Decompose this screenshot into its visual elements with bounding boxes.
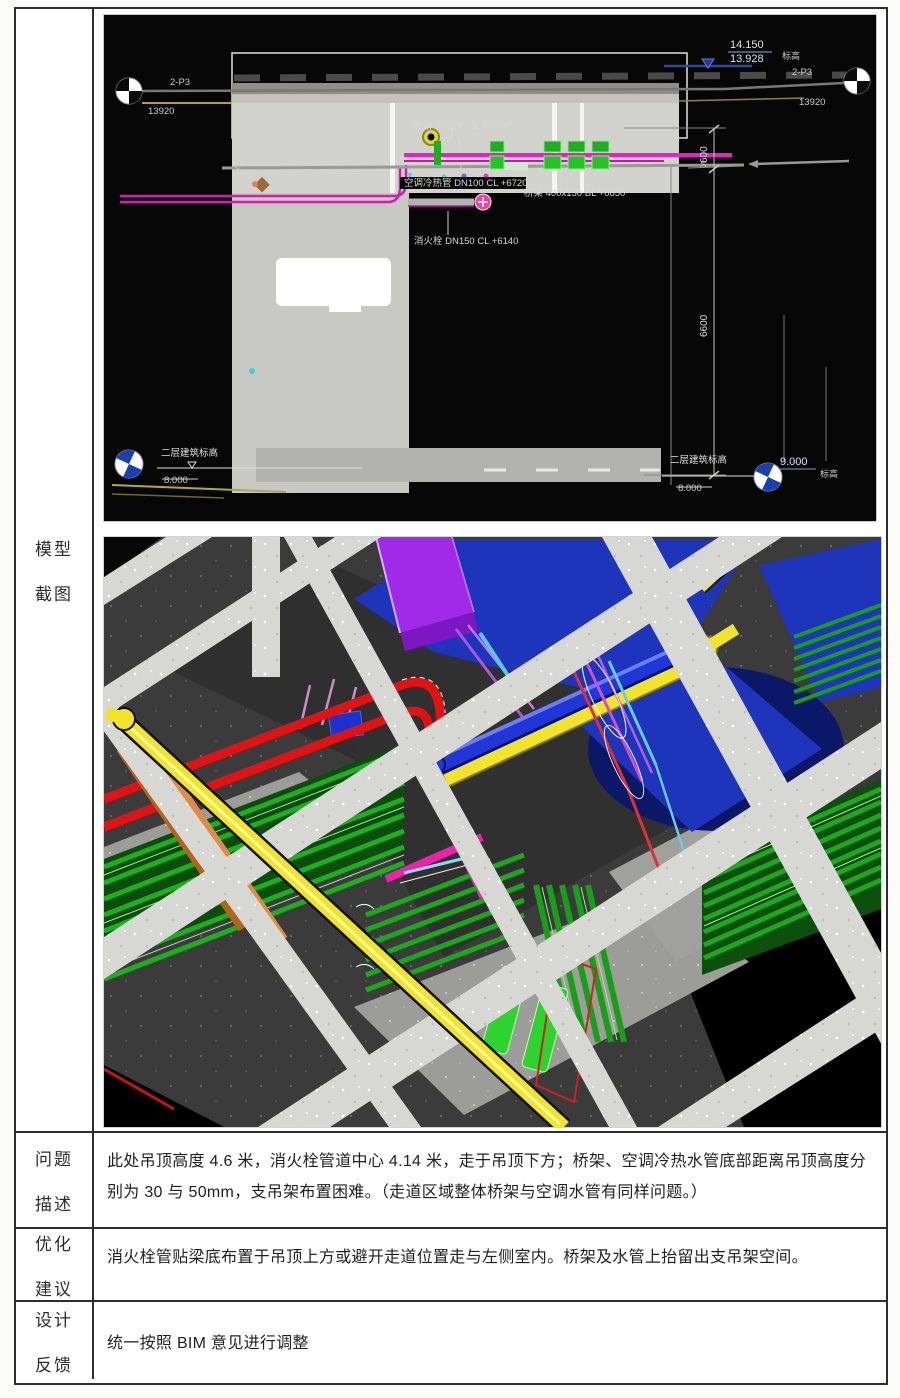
problem-text: 此处吊顶高度 4.6 米，消火栓管道中心 4.14 米，走于吊顶下方；桥架、空调… — [107, 1153, 866, 1201]
row-label-text: 问题 — [35, 1145, 73, 1170]
row-label-suggestion: 优化 建议 — [16, 1229, 94, 1302]
dimension-value: 6600 — [699, 314, 710, 337]
pipe-label-sprinkler: 喷淋 DN100 CL +6840 — [414, 120, 509, 132]
level-value: 14.150 — [730, 39, 764, 51]
review-table: 模型 截图 — [14, 7, 888, 1385]
row-label-text: 设计 — [35, 1306, 73, 1331]
axis-datum-icon — [116, 78, 142, 104]
row-label-feedback: 设计 反馈 — [16, 1302, 94, 1379]
suggestion-text: 消火栓管贴梁底布置于吊顶上方或避开走道位置走与左侧室内。桥架及水管上抬留出支吊架… — [107, 1249, 808, 1266]
row-label-model-screenshot: 模型 截图 — [16, 9, 94, 1133]
model-3d-view — [104, 537, 881, 1127]
row-label-text: 模型 — [35, 535, 73, 560]
level-label: 二层建筑标高 — [670, 454, 727, 466]
screenshot-cell: 2-P3 13920 2-P3 13920 14.150 13.928 标高 — [94, 9, 886, 1133]
axis-datum-icon — [844, 68, 870, 94]
plan-fixture — [276, 258, 391, 306]
dimension-value: 600 — [699, 146, 710, 163]
feedback-text: 统一按照 BIM 意见进行调整 — [107, 1329, 309, 1353]
row-label-text: 截图 — [35, 580, 73, 605]
row-label-text: 反馈 — [35, 1351, 73, 1376]
level-label: 二层建筑标高 — [161, 447, 218, 459]
problem-text-cell: 此处吊顶高度 4.6 米，消火栓管道中心 4.14 米，走于吊顶下方；桥架、空调… — [94, 1133, 886, 1229]
axis-label: 2-P3 — [792, 67, 812, 78]
axis-dim: 13920 — [148, 106, 174, 117]
bim-review-document: { "document": { "rows": [ {"label1": "模型… — [0, 0, 900, 1398]
model-3d-screenshot — [103, 536, 882, 1128]
suggestion-text-cell: 消火栓管贴梁底布置于吊顶上方或避开走道位置走与左侧室内。桥架及水管上抬留出支吊架… — [94, 1229, 886, 1302]
level-value: 8.000 — [164, 475, 188, 486]
break-mark: S — [234, 164, 241, 175]
pipe-label-hydrant: 消火栓 DN150 CL +6140 — [414, 235, 518, 247]
row-label-text: 优化 — [35, 1230, 73, 1255]
level-side-label: 标高 — [782, 50, 800, 61]
level-value: 9.000 — [780, 456, 808, 468]
axis-dim: 13920 — [799, 97, 825, 108]
pipe-label-hvac: 空调冷热管 DN100 CL +6720 — [404, 177, 527, 189]
row-label-text: 建议 — [35, 1275, 73, 1300]
level-side-label: 标高 — [820, 468, 838, 479]
level-value: 13.928 — [730, 53, 764, 65]
level-value: 8.000 — [678, 483, 702, 494]
row-label-problem: 问题 描述 — [16, 1133, 94, 1229]
row-label-text: 描述 — [35, 1190, 73, 1215]
cad-screenshot: 2-P3 13920 2-P3 13920 14.150 13.928 标高 — [103, 14, 877, 522]
cad-drawing: 2-P3 13920 2-P3 13920 14.150 13.928 标高 — [104, 15, 876, 521]
axis-label: 2-P3 — [170, 77, 190, 88]
feedback-text-cell: 统一按照 BIM 意见进行调整 — [94, 1302, 886, 1379]
pipe-label-tray: 桥架 400x150 BL +6650 — [524, 187, 625, 199]
